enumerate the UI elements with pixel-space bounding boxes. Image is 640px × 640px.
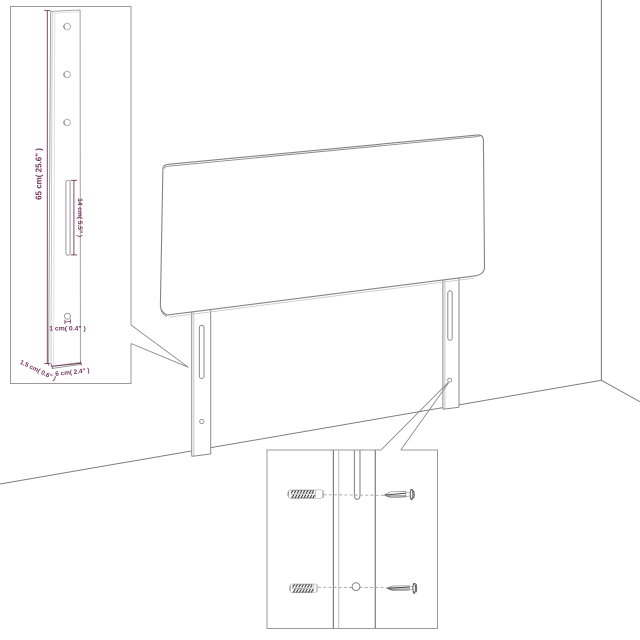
svg-text:65 cm( 25.6" ): 65 cm( 25.6" ) — [35, 148, 44, 200]
svg-text:14 cm( 5.5" ): 14 cm( 5.5" ) — [76, 198, 83, 237]
svg-text:1 cm( 0.4" ): 1 cm( 0.4" ) — [49, 326, 85, 333]
